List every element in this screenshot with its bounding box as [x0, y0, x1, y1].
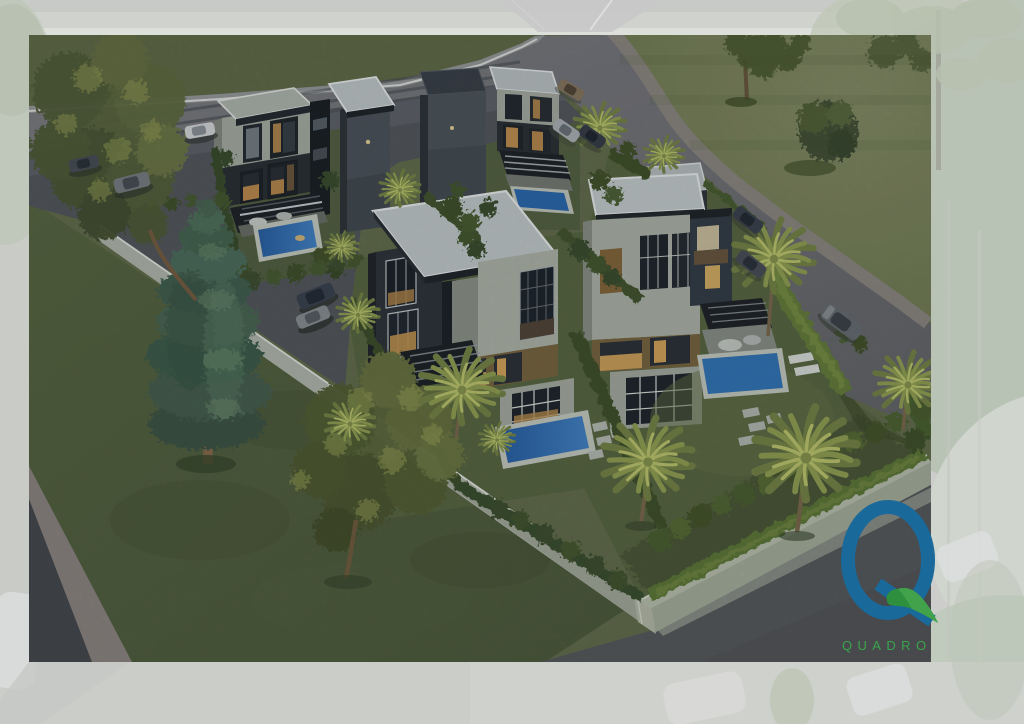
svg-text:QUADRO: QUADRO: [842, 638, 931, 653]
